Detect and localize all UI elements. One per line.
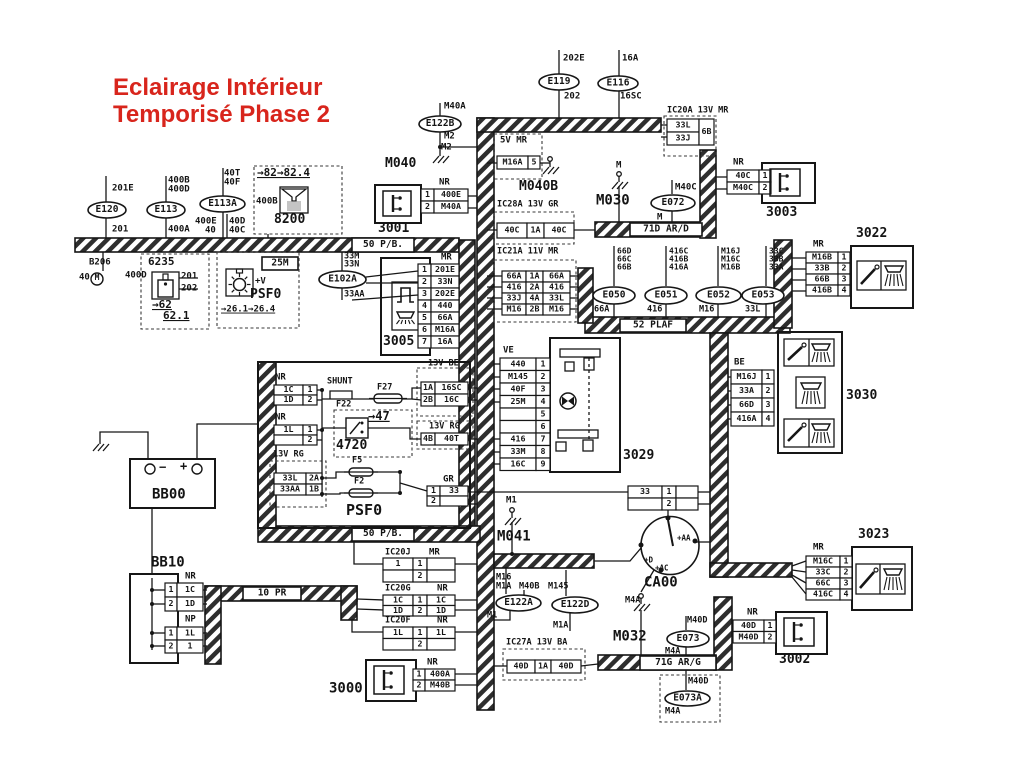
conn-3029-pin: 1 (541, 358, 546, 368)
conn-ic20f-cell (427, 639, 455, 651)
lamp-icon (412, 320, 415, 324)
conn-3005-pin: M16A (435, 324, 455, 334)
m-circle-label: M (95, 273, 100, 282)
wire (594, 548, 641, 561)
wire (197, 424, 258, 459)
conn-3001-pin: 1 (425, 189, 430, 199)
label-text: M032 (613, 629, 647, 645)
switch-icon (788, 347, 802, 360)
conn-3022-pin: 2 (842, 263, 847, 273)
label-text: + (180, 459, 187, 473)
label-text: 6235 (148, 255, 175, 268)
label-text: 3023 (858, 527, 889, 542)
ignition-switch-icon (668, 520, 673, 546)
conn-psf0-gr-pin: 1 (431, 485, 436, 495)
ground-icon (617, 172, 622, 177)
lamp-icon (889, 577, 891, 590)
junction-dot (320, 476, 324, 480)
festoon-lamp-icon (770, 169, 800, 196)
conn-3029-pin: 416 (511, 433, 526, 443)
conn-gr-ca00-cell (676, 486, 698, 498)
lamp-icon (896, 577, 898, 590)
conn-ic20f-pin: 1L (436, 627, 446, 637)
conn-m16a-pin: M16A (503, 157, 523, 167)
bus-label: 25M (271, 257, 288, 268)
splice-label-E050: E050 (603, 289, 626, 300)
lamp-icon (397, 320, 400, 324)
label-text: 8200 (274, 212, 305, 227)
conn-3022-pin: 3 (842, 274, 847, 284)
conn-ic20f-pin: 1 (418, 627, 423, 637)
festoon-lamp-icon (799, 637, 803, 641)
label-text: MR (441, 253, 452, 263)
conn-3000-pin: M40B (430, 680, 450, 690)
conn-3022-pin: 416B (812, 285, 832, 295)
conn-ic28a-pin: 1A (531, 225, 541, 235)
junction-dot (398, 491, 402, 495)
wire (412, 399, 421, 400)
conn-3029-pin: 33M (511, 446, 526, 456)
conn-3029-pin: M145 (508, 371, 528, 381)
conn-ic20j-pin: 2 (418, 570, 423, 580)
lamp-icon (884, 569, 902, 575)
switch-icon (802, 423, 806, 427)
label-text: M40C (675, 183, 697, 193)
label-text: +V (255, 277, 266, 287)
label-text: MR (813, 240, 824, 250)
splice-label-E116: E116 (607, 77, 630, 88)
label-text: BE (734, 358, 745, 368)
label-text: 66A (594, 305, 609, 315)
splice-label-E122D: E122D (561, 599, 590, 610)
label-text: NR (185, 572, 196, 582)
unit-3023 (852, 547, 912, 610)
conn-3003-pin: 40C (736, 170, 751, 180)
splice-label-E053: E053 (752, 289, 775, 300)
bottle-icon (163, 274, 168, 280)
lamp-icon (827, 432, 830, 443)
wire (373, 472, 400, 493)
conn-3002-pin: M40D (739, 631, 759, 641)
splice-label-E102A: E102A (328, 273, 357, 284)
motor-icon (562, 397, 568, 406)
conn-3030-pin: 1 (766, 371, 771, 381)
label-text: PSF0 (250, 287, 281, 302)
conn-3029-pin: 8 (541, 446, 546, 456)
conn-ic20g-pin: 1 (418, 594, 423, 604)
ignition-switch-icon (659, 568, 664, 573)
bus-bar (494, 554, 594, 568)
label-text: NP (185, 615, 196, 625)
label-text: 400B (256, 197, 278, 207)
conn-3002-pin: 2 (768, 631, 773, 641)
lamp-icon (409, 320, 411, 324)
lamp-icon (900, 274, 903, 286)
label-text: 3022 (856, 226, 887, 241)
label-text: 40 (79, 273, 90, 283)
splice-label-E051: E051 (655, 289, 678, 300)
conn-gr-ca00-cell (676, 498, 698, 510)
conn-3005-pin: 16A (438, 336, 453, 346)
label-text: − (159, 460, 166, 474)
conn-3003-pin: 2 (763, 182, 768, 192)
conn-3005-pin: 5 (422, 312, 427, 322)
conn-ic20g-pin: 2 (418, 605, 423, 615)
bus-bar (477, 118, 494, 710)
label-text: BB00 (152, 487, 186, 503)
label-text: M2 (444, 132, 455, 142)
conn-3022-pin: 33B (815, 263, 830, 273)
unit-3030 (778, 332, 842, 453)
lamp-icon (824, 432, 826, 443)
conn-ic20g-pin: 1C (393, 594, 403, 604)
label-text: 4720 (336, 438, 367, 453)
label-text: CA00 (644, 575, 678, 591)
label-text: 400D (168, 185, 190, 195)
splice-label-E073: E073 (677, 633, 700, 644)
label-text: M16 (699, 305, 714, 315)
label-text: 33N (344, 260, 359, 270)
label-text: M145 (548, 582, 568, 592)
label-text: 3030 (846, 388, 877, 403)
battery-terminal (192, 464, 202, 474)
label-text: IC21A 11V MR (497, 247, 559, 257)
label-text: 3005 (383, 334, 414, 349)
label-text: F5 (352, 456, 362, 466)
label-text: F27 (377, 383, 392, 393)
sun-icon (232, 277, 234, 279)
ground-icon (639, 594, 644, 599)
junction-dot (320, 492, 324, 496)
conn-psf0-nr1-pin: 1D (284, 394, 294, 404)
festoon-lamp-icon (374, 666, 404, 694)
lamp-icon (897, 274, 899, 286)
sun-icon (232, 290, 234, 292)
conn-ic21a-pin: 416 (549, 282, 564, 292)
label-text: 201E (112, 184, 134, 194)
conn-ic20f-cell (383, 639, 413, 651)
label-text: 202E (563, 54, 585, 64)
lamp-icon (899, 577, 902, 590)
lamp-icon (397, 312, 414, 318)
conn-3001-pin: 400E (441, 189, 461, 199)
conn-psf0-nr1-pin: 1C (284, 384, 294, 394)
conn-gr-ca00-pin: 1 (667, 486, 672, 496)
lamp-icon (807, 391, 809, 404)
label-text: 13V RG (273, 450, 304, 460)
festoon-lamp-icon (785, 187, 789, 191)
conn-psf0-nr2-pin: 2 (308, 434, 313, 444)
conn-3003-pin: M40C (733, 182, 753, 192)
conn-psf0-nr1-pin: 1 (308, 384, 313, 394)
ground-icon (548, 157, 553, 162)
wire (792, 561, 806, 566)
label-text: NR (437, 584, 448, 594)
conn-psf0-gr-pin: 2 (431, 495, 436, 505)
conn-3022-pin: 4 (842, 285, 847, 295)
conn-ic20j-cell (383, 570, 413, 582)
ground-icon (510, 508, 515, 513)
label-text: M040 (385, 156, 416, 171)
junction-dot (510, 552, 514, 556)
conn-3022-pin: 1 (842, 252, 847, 262)
label-text: MR (813, 543, 824, 553)
lamp-icon (812, 344, 830, 350)
unit-3022 (851, 246, 913, 308)
conn-bb10-np-pin: 1L (185, 628, 195, 638)
ignition-switch-icon (666, 516, 671, 521)
label-text: 400A (168, 225, 190, 235)
label-text: 13V RG (429, 422, 460, 432)
label-text: NR (275, 413, 286, 423)
label-text: +AA (677, 534, 691, 543)
conn-ic21a-pin: 33J (507, 293, 522, 303)
label-text: 5V MR (500, 136, 528, 146)
wire (357, 599, 383, 600)
conn-3030-pin: 66D (739, 399, 754, 409)
conn-3029-pin: 4 (541, 396, 546, 406)
conn-ic21a-pin: M16 (507, 304, 522, 314)
conn-3030-pin: 2 (766, 385, 771, 395)
label-text: NR (733, 158, 744, 168)
label-text: 3003 (766, 205, 797, 220)
funnel-icon (282, 189, 306, 201)
conn-ic20j-cell (427, 558, 455, 570)
festoon-lamp-icon (785, 174, 789, 178)
relay-icon (346, 418, 368, 438)
conn-ic28a-pin: 40C (552, 225, 567, 235)
label-text: IC20A 13V MR (667, 106, 729, 116)
res-3029-bot (558, 430, 598, 438)
switch-icon (860, 572, 874, 588)
conn-psf0-13vbe-pin: 1A (423, 382, 433, 392)
bus-label: 52 PLAF (633, 319, 673, 330)
res-3029-top (560, 349, 600, 357)
conn-3005-pin: 33N (438, 276, 453, 286)
conn-3029-pin: 440 (511, 358, 526, 368)
lamp-icon (885, 266, 903, 272)
conn-3029-pin: 6 (541, 421, 546, 431)
sq-3029-1 (565, 362, 574, 371)
lamp-icon (884, 577, 887, 590)
conn-3005-pin: 6 (422, 324, 427, 334)
sun-icon (245, 277, 247, 279)
label-text: 3001 (378, 221, 409, 236)
wiring-diagram: 50 P/B.71D AR/D52 PLAF10 PR50 P/B.71G AR… (0, 0, 1024, 768)
label-text: IC20F (385, 616, 411, 626)
conn-3029-pin: 9 (541, 458, 546, 468)
conn-3000-pin: 2 (417, 680, 422, 690)
label-text: IC27A 13V BA (506, 638, 567, 648)
conn-3022-pin: M16B (812, 252, 832, 262)
label-text: 202 (181, 284, 197, 294)
label-text: NR (747, 608, 758, 618)
label-text: M40A (444, 102, 466, 112)
conn-3022-pin: 66B (815, 274, 830, 284)
lamp-icon (401, 320, 403, 324)
label-text: 33L (745, 305, 760, 315)
conn-3029-pin: 16C (511, 458, 526, 468)
conn-psf0-13vbe-pin: 2B (423, 394, 433, 404)
conn-3030-pin: M16J (737, 371, 757, 381)
junction-dot (398, 470, 402, 474)
label-text: IC20G (385, 584, 411, 594)
relay-icon (361, 431, 364, 434)
switch-icon (861, 269, 875, 284)
label-text: M4A (625, 596, 640, 606)
bus-bar (710, 333, 728, 577)
lamp-icon (817, 432, 819, 443)
conn-3005-pin: 4 (422, 300, 427, 310)
sun-icon (234, 279, 246, 291)
lamp-icon (802, 391, 805, 404)
bus-bar (258, 362, 276, 528)
label-text: 33AA (344, 290, 364, 300)
festoon-lamp-icon (784, 618, 814, 646)
conn-ic27a-pin: 40D (559, 661, 574, 671)
label-text: 3029 (623, 448, 654, 463)
label-text: M1 (506, 496, 517, 506)
junction-dot (320, 428, 324, 432)
conn-3023-pin: 3 (844, 578, 849, 588)
bus-bar (205, 586, 221, 664)
label-text: M40B (519, 582, 539, 592)
conn-3029-pin: 7 (541, 433, 546, 443)
conn-3002-pin: 40D (741, 620, 756, 630)
conn-ic20a-pin: 33L (676, 120, 691, 130)
lamp-icon (817, 352, 819, 362)
conn-ic21a-pin: 66A (507, 271, 522, 281)
festoon-lamp-icon (799, 623, 803, 627)
label-text: M040B (519, 179, 558, 194)
conn-3005-pin: 202E (435, 288, 455, 298)
bus-bar (477, 118, 661, 132)
label-text: 201 (181, 272, 197, 282)
conn-3023-pin: 66C (816, 578, 831, 588)
bus-label: 50 P/B. (363, 239, 403, 250)
bus-label: 10 PR (258, 587, 287, 598)
festoon-lamp-icon (389, 671, 393, 675)
label-text: 66B (617, 263, 632, 272)
conn-ic20j-pin: 1 (396, 558, 401, 568)
switch-icon (802, 343, 806, 347)
splice-label-E052: E052 (707, 289, 730, 300)
ignition-switch-icon (639, 543, 644, 548)
bus-label: 71D AR/D (643, 223, 689, 234)
lamp-icon (801, 383, 821, 389)
label-text: →26.1→26.4 (221, 305, 276, 315)
conn-bb10-nr-pin: 1C (185, 584, 195, 594)
label-text: F22 (336, 400, 351, 410)
label-text: BB10 (151, 555, 185, 571)
conn-ic20g-pin: 1D (436, 605, 446, 615)
wire (366, 271, 418, 277)
wiring-diagram-page: Eclairage Intérieur Temporisé Phase 2 50… (0, 0, 1024, 768)
conn-psf0-13vrg-l-pin: 1B (309, 484, 319, 494)
conn-3005-pin: 201E (435, 264, 455, 274)
wire (792, 570, 806, 572)
bus-label: 50 P/B. (363, 528, 403, 539)
relay-icon (361, 422, 364, 425)
conn-psf0-13vrg-l-pin: 33AA (280, 484, 300, 494)
conn-bb10-np-pin: 1 (188, 641, 193, 651)
conn-3029-pin: 40F (511, 383, 526, 393)
wire (352, 620, 383, 632)
conn-3005-pin: 7 (422, 336, 427, 346)
label-text: M1A (496, 582, 511, 592)
lamp-icon (885, 274, 888, 286)
label-text: 16A (622, 54, 639, 64)
conn-ic28a-pin: 40C (505, 225, 520, 235)
label-text: 3002 (779, 652, 810, 667)
label-text: NR (439, 178, 450, 188)
conn-ic20j-cell (427, 570, 455, 582)
bottle-icon (164, 282, 167, 285)
conn-3023-pin: 1 (844, 556, 849, 566)
splice-label-E120: E120 (96, 204, 119, 215)
splice-label-E122A: E122A (504, 597, 533, 608)
switch-icon (874, 568, 878, 572)
conn-3029-pin: 3 (541, 383, 546, 393)
label-text: 62.1 (163, 309, 190, 322)
conn-cell-label: 6B (702, 126, 712, 136)
lamp-icon (812, 424, 830, 430)
sq-3029-4 (583, 440, 593, 451)
conn-psf0-nr1-pin: 2 (308, 394, 313, 404)
label-text: VE (503, 346, 514, 356)
label-text: 3000 (329, 681, 363, 697)
conn-ic27a-pin: 1A (538, 661, 548, 671)
label-text: IC20J (385, 548, 411, 558)
conn-ic21a-pin: 4A (530, 293, 540, 303)
splice-label-E119: E119 (548, 76, 571, 87)
label-text: 202 (564, 92, 580, 102)
battery-terminal (145, 464, 155, 474)
label-text: B206 (89, 258, 111, 268)
lamp-icon (814, 391, 816, 404)
conn-3003-pin: 1 (763, 170, 768, 180)
conn-ic20g-pin: 1D (393, 605, 403, 615)
junction-dot (150, 644, 154, 648)
label-text: NR (427, 658, 438, 668)
conn-gr-ca00-cell (628, 498, 662, 510)
conn-3029-cell (500, 421, 536, 434)
lamp-icon (817, 391, 820, 404)
conn-bb10-np-pin: 2 (169, 641, 174, 651)
label-text: IC28A 13V GR (497, 200, 559, 210)
conn-3029-cell (500, 408, 536, 421)
conn-3001-pin: 2 (425, 201, 430, 211)
label-text: 416A (669, 263, 688, 272)
junction-dot (150, 588, 154, 592)
conn-3005-pin: 1 (422, 264, 427, 274)
wire (357, 609, 383, 610)
conn-m16a-pin: 5 (532, 157, 537, 167)
junction-dot (150, 631, 154, 635)
label-text: M (657, 213, 663, 223)
label-text: M40D (687, 616, 707, 626)
label-text: M1A (553, 621, 568, 631)
conn-ic20f-pin: 2 (418, 638, 423, 648)
junction-dot (320, 388, 324, 392)
conn-ic20a-pin: 33J (676, 133, 691, 143)
conn-3030-pin: 33A (739, 385, 754, 395)
label-text: M (616, 161, 622, 171)
conn-3030-pin: 416A (737, 413, 757, 423)
funnel-icon (287, 201, 301, 211)
conn-psf0-gr-pin: 33 (449, 485, 459, 495)
conn-3000-pin: 400A (430, 669, 450, 679)
